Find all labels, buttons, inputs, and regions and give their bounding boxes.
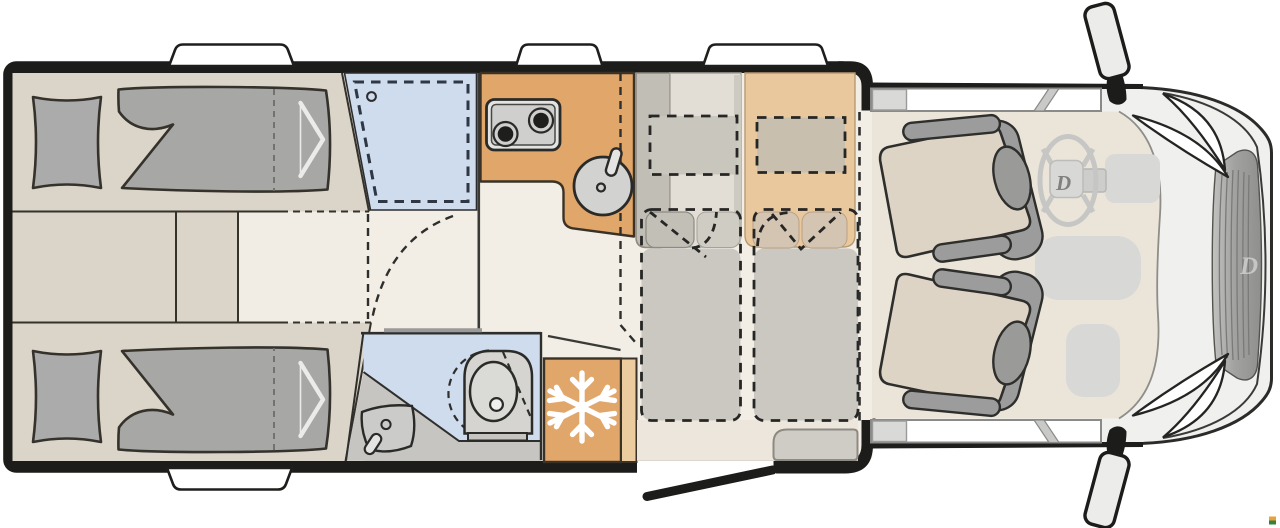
- svg-text:D: D: [1055, 171, 1071, 195]
- svg-text:D: D: [1239, 253, 1258, 280]
